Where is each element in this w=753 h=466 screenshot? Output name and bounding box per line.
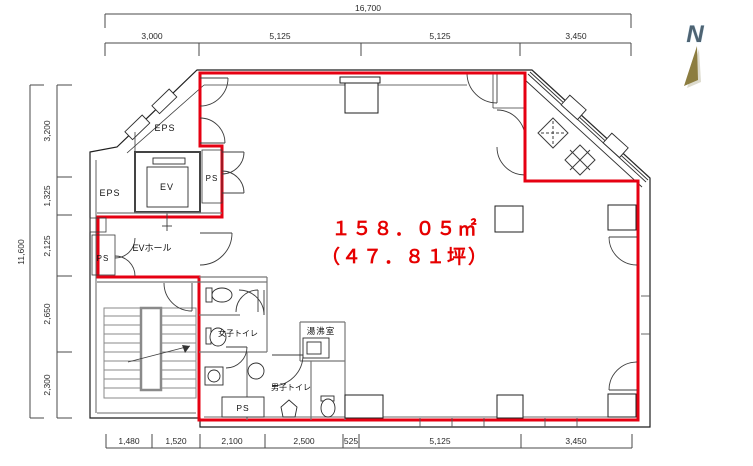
corner-louver	[467, 70, 650, 187]
dim-left-seg-3: 2,125	[42, 235, 52, 257]
label-ps-upper: PS	[206, 174, 219, 183]
dim-top-seg-4: 3,450	[565, 31, 587, 41]
area-label: １５８．０５㎡ （４７．８１坪）	[321, 217, 489, 268]
dim-bottom-seg-4: 2,500	[293, 436, 315, 446]
area-size: １５８．０５㎡	[331, 217, 478, 240]
column	[345, 395, 383, 418]
north-needle	[684, 46, 698, 86]
dim-bottom-seg-1: 1,480	[118, 436, 140, 446]
dimension-bottom: 1,480 1,520 2,100 2,500 525 5,125 3,450	[106, 434, 632, 448]
dim-left-total: 11,600	[16, 239, 26, 265]
dim-left-seg-4: 2,650	[42, 303, 52, 325]
north-letter: N	[686, 21, 704, 48]
dimension-left: 11,600 3,200 1,325 2,125 2,650 2,300	[16, 85, 72, 418]
label-eps-upper: EPS	[154, 123, 175, 133]
label-ps-bottom: PS	[236, 403, 249, 413]
dim-bottom-seg-6: 5,125	[429, 436, 451, 446]
dim-bottom-seg-5: 525	[344, 436, 358, 446]
label-ev-hall: EVホール	[132, 243, 171, 253]
label-eps-left: EPS	[99, 188, 120, 198]
toilet-block: 女子トイレ 男子トイレ 湯沸室 PS	[199, 277, 345, 420]
toilet-fixture	[321, 399, 335, 417]
column	[345, 83, 378, 113]
column	[497, 395, 523, 418]
column	[608, 205, 636, 230]
urinal	[281, 400, 297, 417]
floor-plan-page: 16,700 3,000 5,125 5,125 3,450 11,600 3,…	[0, 0, 753, 466]
toilet-fixture	[212, 288, 232, 302]
label-ps-left: PS	[97, 254, 110, 263]
dim-bottom-seg-2: 1,520	[165, 436, 187, 446]
elevator-core: EV EPS EPS PS	[99, 123, 222, 231]
dim-top-seg-3: 5,125	[429, 31, 451, 41]
dim-top-total: 16,700	[355, 3, 381, 13]
area-tsubo: （４７．８１坪）	[321, 245, 489, 268]
dim-left-seg-1: 3,200	[42, 120, 52, 142]
dim-bottom-seg-3: 2,100	[221, 436, 243, 446]
dimension-top: 16,700 3,000 5,125 5,125 3,450	[105, 3, 631, 56]
north-arrow: N	[684, 21, 704, 88]
label-kitchenette: 湯沸室	[307, 326, 336, 336]
floor-plan-svg: 16,700 3,000 5,125 5,125 3,450 11,600 3,…	[0, 0, 753, 466]
column	[495, 206, 523, 232]
dim-left-seg-2: 1,325	[42, 185, 52, 207]
dim-top-seg-1: 3,000	[141, 31, 163, 41]
stair-newel	[141, 308, 161, 390]
dim-left-seg-5: 2,300	[42, 374, 52, 396]
column	[608, 394, 636, 417]
sink	[248, 363, 264, 379]
label-ev: EV	[160, 182, 174, 192]
staircase	[104, 283, 196, 398]
dim-bottom-seg-7: 3,450	[565, 436, 587, 446]
dim-top-seg-2: 5,125	[269, 31, 291, 41]
label-womens-toilet: 女子トイレ	[218, 328, 258, 338]
ev-hall: PS EVホール	[90, 213, 232, 282]
label-mens-toilet: 男子トイレ	[271, 383, 311, 392]
